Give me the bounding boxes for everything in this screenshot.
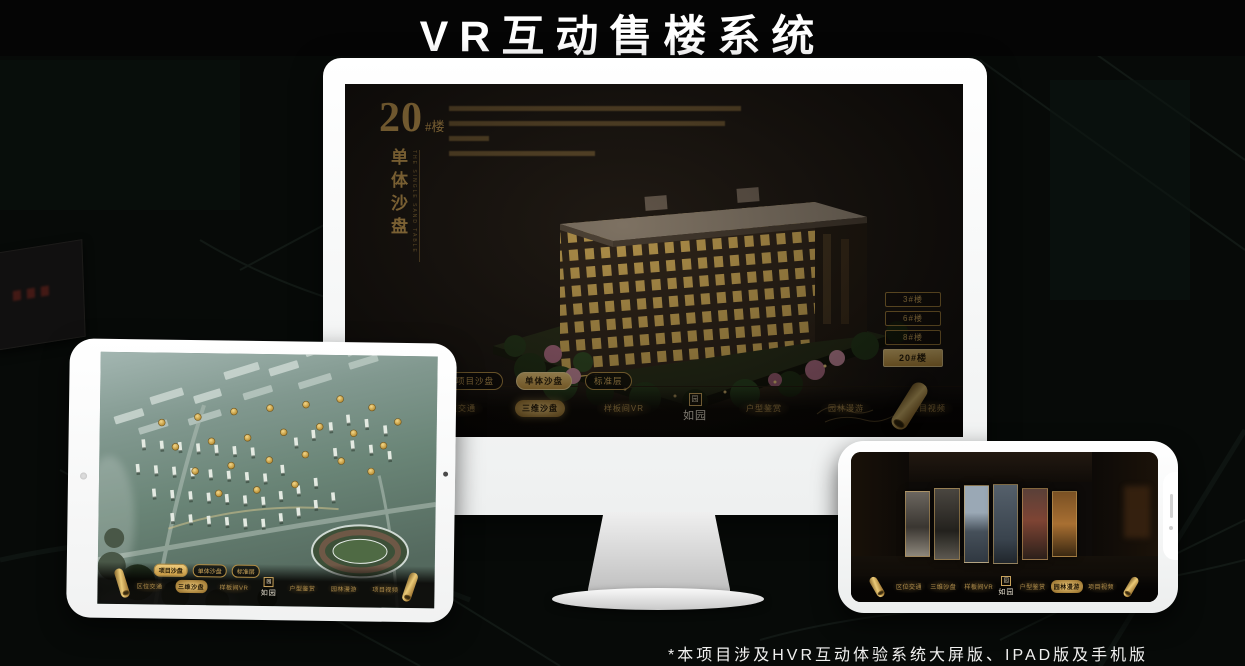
phone-frame: 区位交通 三维沙盘 样板间VR 园 如园 户型鉴赏 园林漫游 项目视频 xyxy=(838,441,1178,613)
phone-menu-project-video[interactable]: 项目视频 xyxy=(1085,580,1117,593)
title-divider-line xyxy=(419,150,420,262)
block-number-value: 20 xyxy=(379,95,423,141)
tab-standard-floor[interactable]: 标准层 xyxy=(585,372,632,390)
phone-scene-warm-window xyxy=(1124,486,1150,538)
tablet-brand-logo: 园 如园 xyxy=(261,577,277,598)
tablet-camera-icon xyxy=(80,472,87,479)
tablet-menu-garden-roam[interactable]: 园林漫游 xyxy=(328,582,360,595)
tablet-brand-logo-text: 如园 xyxy=(261,588,277,598)
tablet-menu-project-video[interactable]: 项目视频 xyxy=(369,583,401,596)
screen-title-vertical: 单体沙盘 xyxy=(385,148,410,240)
gallery-panel-4[interactable] xyxy=(993,484,1018,564)
tablet-menu-location-traffic[interactable]: 区位交通 xyxy=(133,579,165,592)
phone-main-menu: 区位交通 三维沙盘 样板间VR 园 如园 户型鉴赏 园林漫游 项目视频 xyxy=(893,576,1117,597)
brand-logo: 园 如园 xyxy=(683,393,707,423)
monitor-mode-tabs: 项目沙盘 单体沙盘 标准层 xyxy=(447,372,632,390)
phone-seal-icon: 园 xyxy=(1001,576,1011,586)
tablet-screen: 项目沙盘 单体沙盘 标准层 区位交通 三维沙盘 样板间VR 园 如园 户型鉴赏 … xyxy=(97,352,437,609)
footnote-text: *本项目涉及HVR互动体验系统大屏版、IPAD版及手机版 xyxy=(668,641,1148,665)
tablet-home-button[interactable] xyxy=(443,472,448,477)
phone-camera-icon xyxy=(1169,526,1173,530)
phone-speaker-icon xyxy=(1170,494,1173,518)
phone-screen: 区位交通 三维沙盘 样板间VR 园 如园 户型鉴赏 园林漫游 项目视频 xyxy=(851,452,1158,602)
floor-button-20-active[interactable]: 20#楼 xyxy=(883,349,943,367)
floor-button-3[interactable]: 3#楼 xyxy=(885,292,941,307)
plaque-red-characters xyxy=(13,285,49,301)
floor-button-8[interactable]: 8#楼 xyxy=(885,330,941,345)
phone-notch xyxy=(1163,472,1178,560)
tablet-main-menu: 区位交通 三维沙盘 样板间VR 园 如园 户型鉴赏 园林漫游 项目视频 xyxy=(133,575,401,600)
promo-canvas: VR互动售楼系统 xyxy=(0,0,1245,666)
floor-button-6[interactable]: 6#楼 xyxy=(885,311,941,326)
page-title: VR互动售楼系统 xyxy=(0,2,1245,64)
tablet-menu-showroom-vr[interactable]: 样板间VR xyxy=(216,580,251,593)
block-number: 20#楼 xyxy=(379,94,445,142)
gallery-panel-5[interactable] xyxy=(1022,488,1047,560)
menu-3d-sandtable[interactable]: 三维沙盘 xyxy=(515,400,565,417)
block-number-suffix: #楼 xyxy=(425,119,445,134)
gallery-panel-2[interactable] xyxy=(934,488,959,560)
tablet-seal-icon: 园 xyxy=(264,577,274,587)
tablet-frame: 项目沙盘 单体沙盘 标准层 区位交通 三维沙盘 样板间VR 园 如园 户型鉴赏 … xyxy=(66,338,457,622)
phone-brand-logo: 园 如园 xyxy=(998,576,1014,597)
menu-showroom-vr[interactable]: 样板间VR xyxy=(597,400,651,417)
tab-single-sandtable[interactable]: 单体沙盘 xyxy=(516,372,572,390)
floor-selector: 3#楼 6#楼 8#楼 20#楼 xyxy=(883,292,943,367)
monitor-stand-neck xyxy=(588,512,730,596)
menu-unit-layouts[interactable]: 户型鉴赏 xyxy=(739,400,789,417)
seal-icon: 园 xyxy=(689,393,702,406)
phone-menu-garden-roam[interactable]: 园林漫游 xyxy=(1051,580,1083,593)
phone-menu-showroom-vr[interactable]: 样板间VR xyxy=(961,580,996,593)
tablet-menu-unit-layouts[interactable]: 户型鉴赏 xyxy=(286,581,318,594)
description-text-blurred xyxy=(449,106,741,166)
phone-menu-3d-sandtable[interactable]: 三维沙盘 xyxy=(927,580,959,593)
gallery-panel-3[interactable] xyxy=(964,485,989,563)
phone-brand-logo-text: 如园 xyxy=(998,587,1014,597)
gallery-panels xyxy=(905,478,1077,570)
gallery-panel-6[interactable] xyxy=(1052,491,1077,557)
monitor-stand-base xyxy=(552,588,764,610)
brand-logo-text: 如园 xyxy=(683,407,707,423)
gallery-panel-1[interactable] xyxy=(905,491,930,557)
phone-menu-location-traffic[interactable]: 区位交通 xyxy=(893,580,925,593)
screen-subtitle-en: THE SINGLE SAND TABLE xyxy=(411,150,417,254)
phone-menu-unit-layouts[interactable]: 户型鉴赏 xyxy=(1017,580,1049,593)
tablet-menu-3d-sandtable[interactable]: 三维沙盘 xyxy=(175,580,207,593)
background-wall-plaque xyxy=(0,239,86,351)
